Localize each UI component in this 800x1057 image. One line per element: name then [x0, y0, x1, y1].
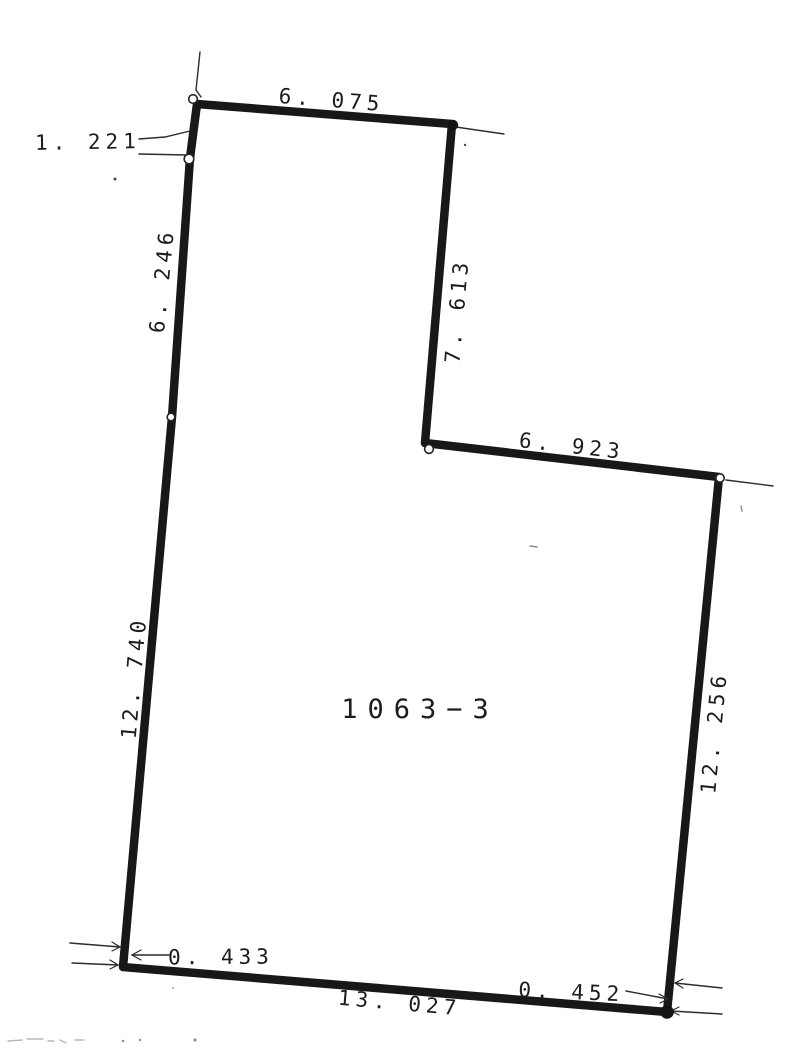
offset-1221-leader-upper: [139, 131, 190, 139]
scan-speck: [172, 987, 174, 989]
scan-smudge: [8, 1040, 22, 1041]
right-corner-extension-line: [726, 480, 773, 486]
vertex-circle-left-middle: [167, 413, 175, 421]
parcel-boundary: [123, 104, 719, 1012]
scan-smudge: [60, 1040, 66, 1043]
scan-smudge: [139, 1039, 141, 1041]
vertex-dot-bottom-right: [660, 1005, 674, 1019]
dimension-label-bottom-right-offset: 0. 452: [518, 978, 625, 1007]
parcel-number-label: 1063−3: [341, 694, 499, 725]
top-right-extension-line: [456, 127, 504, 134]
bottom-edge-smudges: [8, 1038, 197, 1043]
dimension-label-upper-left-offset: 1. 221: [35, 129, 141, 155]
cadastral-parcel-drawing: 6. 075 1. 221 6. 246 7. 613 6. 923 12. 7…: [0, 0, 800, 1057]
offset-1221-leader-lower: [139, 154, 187, 155]
scan-speck: [530, 546, 537, 547]
scan-speck: [741, 506, 742, 511]
parcel-boundary-outline: [123, 104, 719, 1012]
survey-leader-lines: [70, 52, 773, 1015]
dimension-label-left-upper-edge: 6. 246: [145, 226, 179, 334]
dimension-label-notch-right-edge: 7. 613: [440, 257, 473, 365]
dimension-labels: 6. 075 1. 221 6. 246 7. 613 6. 923 12. 7…: [35, 84, 732, 1020]
dimension-label-bottom-left-offset: 0. 433: [168, 945, 274, 970]
scan-smudge: [122, 1040, 125, 1043]
scan-speck: [464, 144, 466, 146]
bottom-right-tie-line-lower: [671, 1011, 722, 1014]
bottom-left-tie-line-lower: [72, 963, 118, 965]
vertex-circle-upper-left-offset: [184, 154, 194, 164]
bottom-left-tie-line-upper: [70, 943, 120, 947]
scan-artifacts: [8, 144, 742, 1043]
vertex-circle-notch-corner: [425, 445, 434, 454]
scanned-survey-page: 6. 075 1. 221 6. 246 7. 613 6. 923 12. 7…: [0, 0, 800, 1057]
vertex-circle-top-left: [189, 95, 198, 104]
vertex-dot-top-right: [448, 120, 458, 130]
north-extension-line: [196, 52, 201, 97]
scan-speck: [114, 178, 117, 181]
vertex-circle-right-corner: [716, 474, 724, 482]
scan-smudge: [193, 1038, 196, 1041]
